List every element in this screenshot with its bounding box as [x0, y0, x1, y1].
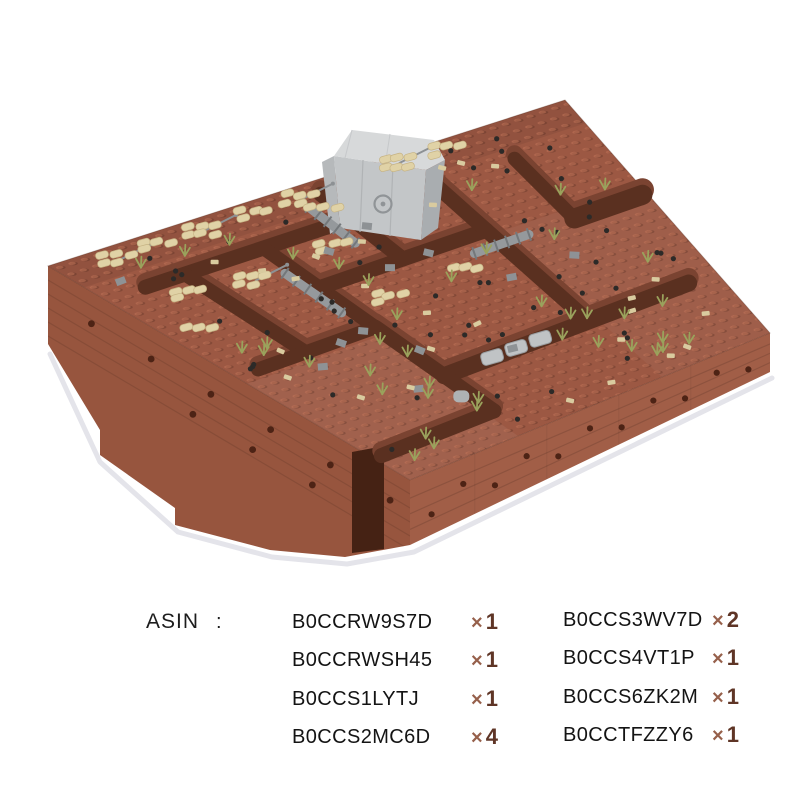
asin-code: B0CCS6ZK2M [563, 678, 703, 716]
asin-qty: ×1 [471, 641, 498, 679]
asin-code: B0CCS3WV7D [563, 601, 703, 639]
asin-label-text: ASIN [146, 610, 199, 633]
asin-code: B0CCRW9S7D [292, 603, 432, 641]
asin-label: ASIN: [146, 603, 223, 641]
product-image: ASIN: B0CCRW9S7D B0CCRWSH45 B0CCS1LYTJ B… [0, 0, 800, 800]
asin-code: B0CCS2MC6D [292, 718, 432, 756]
asin-qty: ×1 [712, 716, 739, 754]
asin-qty-column-2: ×2 ×1 ×1 ×1 [712, 601, 739, 755]
asin-codes-column-1: B0CCRW9S7D B0CCRWSH45 B0CCS1LYTJ B0CCS2M… [292, 603, 432, 757]
asin-qty: ×1 [712, 639, 739, 677]
asin-codes-column-2: B0CCS3WV7D B0CCS4VT1P B0CCS6ZK2M B0CCTFZ… [563, 601, 703, 755]
asin-colon: : [216, 603, 223, 641]
asin-qty: ×1 [712, 678, 739, 716]
asin-code: B0CCRWSH45 [292, 641, 432, 679]
asin-qty: ×1 [471, 680, 498, 718]
asin-qty: ×2 [712, 601, 739, 639]
asin-qty: ×1 [471, 603, 498, 641]
asin-qty-column-1: ×1 ×1 ×1 ×4 [471, 603, 498, 757]
asin-code: B0CCS1LYTJ [292, 680, 432, 718]
asin-qty: ×4 [471, 718, 498, 756]
asin-code: B0CCTFZZY6 [563, 716, 703, 754]
asin-code: B0CCS4VT1P [563, 639, 703, 677]
asin-section: ASIN: B0CCRW9S7D B0CCRWSH45 B0CCS1LYTJ B… [0, 0, 800, 800]
